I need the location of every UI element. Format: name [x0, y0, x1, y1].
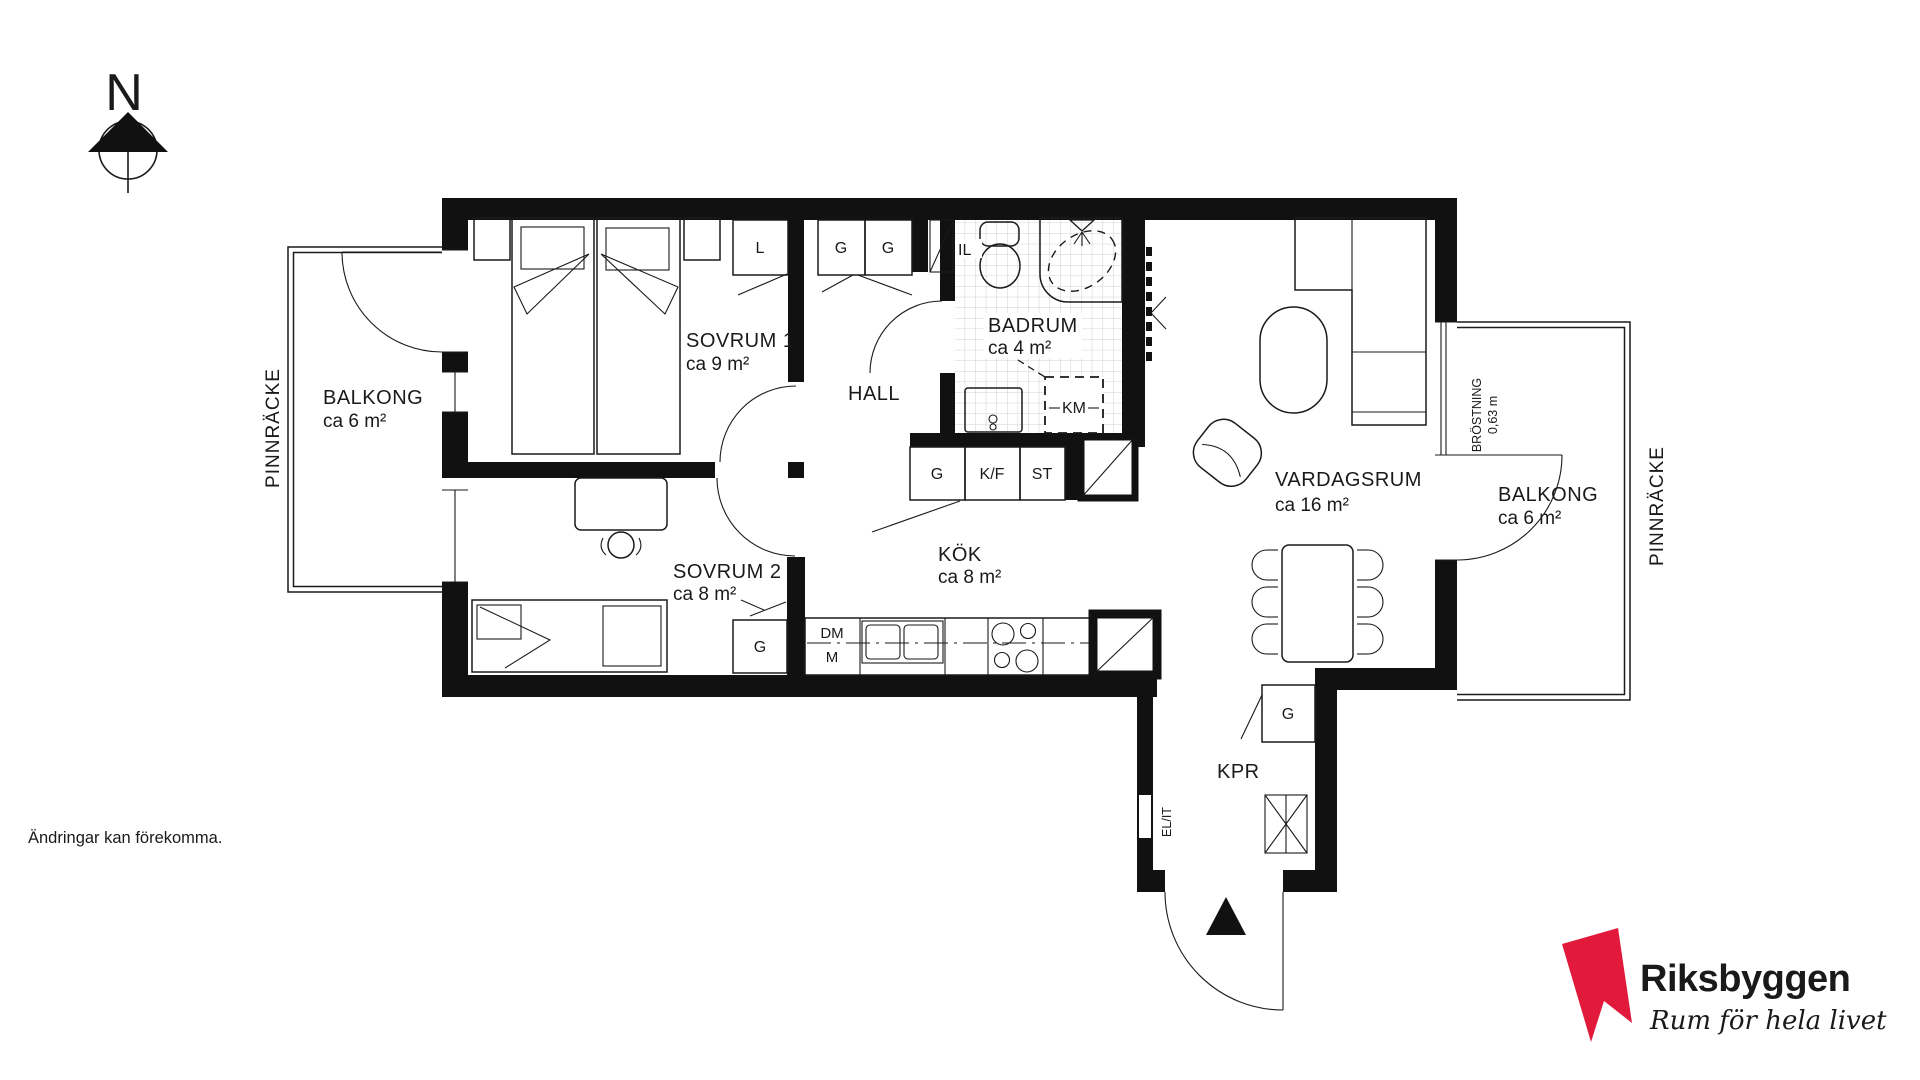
fixture-L: L — [756, 240, 765, 257]
room-label-sovrum2: SOVRUM 2 — [673, 561, 781, 583]
brand-tagline: Rum för hela livet — [1649, 1006, 1887, 1036]
floor-plan-page: N — [0, 0, 1920, 1080]
room-area-sovrum1: ca 9 m² — [686, 354, 749, 375]
door-bathroom — [870, 301, 942, 373]
coffee-table-icon — [1260, 307, 1327, 413]
railing-label-left: PINNRÄCKE — [263, 368, 284, 488]
door-bedroom1 — [720, 386, 796, 462]
coat-rack-icon — [1265, 795, 1307, 853]
vent-shaft-marker — [1149, 247, 1166, 367]
fixture-ST: ST — [1032, 466, 1053, 483]
double-bed-icon — [512, 218, 680, 454]
room-label-kpr: KPR — [1217, 761, 1260, 783]
nightstand-icon — [474, 218, 510, 260]
sofa-icon — [1295, 218, 1426, 425]
fixture-G1: G — [835, 240, 847, 257]
fixture-G-kpr: G — [1282, 706, 1294, 723]
room-area-kok: ca 8 m² — [938, 567, 1001, 588]
balcony-left-label: BALKONG — [323, 387, 423, 409]
riksbyggen-logo: Riksbyggen Rum för hela livet — [1562, 928, 1887, 1042]
fixture-IL: IL — [958, 242, 971, 259]
window-livingroom — [1435, 322, 1457, 455]
door-kitchen-leaf — [872, 501, 960, 532]
svg-text:BRÖSTNING: BRÖSTNING — [1470, 378, 1484, 452]
closet-G-bedroom2 — [733, 602, 787, 673]
room-label-sovrum1: SOVRUM 1 — [686, 330, 794, 352]
fixture-G-kitchen: G — [931, 466, 943, 483]
armchair-icon — [1186, 412, 1269, 494]
shaft-lower — [1093, 614, 1157, 675]
room-label-badrum: BADRUM — [988, 315, 1078, 337]
compass-icon: N — [88, 64, 168, 193]
balcony-door-swing — [342, 252, 442, 352]
window-bedroom1 — [442, 372, 468, 412]
room-area-sovrum2: ca 8 m² — [673, 584, 736, 605]
fixture-ELIT: EL/IT — [1160, 807, 1174, 837]
kitchen-counter — [805, 618, 1093, 675]
fixture-M: M — [826, 649, 839, 666]
closet-L — [733, 220, 788, 295]
floor-plan-svg: N — [0, 0, 1920, 1080]
stove-icon — [992, 623, 1038, 672]
closet-G-kpr — [1241, 685, 1315, 742]
svg-text:0,63 m: 0,63 m — [1486, 396, 1500, 434]
kitchen-sink-icon — [862, 621, 943, 663]
electrical-panel-icon — [1139, 795, 1151, 838]
compass-north-label: N — [105, 64, 143, 122]
hall-closets — [818, 220, 912, 295]
balcony-right-label: BALKONG — [1498, 484, 1598, 506]
fixture-G-bedroom2: G — [754, 639, 766, 656]
footer-disclaimer: Ändringar kan förekomma. — [28, 829, 222, 847]
single-bed-icon — [472, 600, 667, 672]
entrance — [1165, 892, 1283, 1010]
balcony-right-area: ca 6 m² — [1498, 508, 1561, 529]
entrance-arrow-icon — [1206, 897, 1246, 935]
room-label-hall: HALL — [848, 383, 900, 405]
dining-chairs — [1252, 550, 1383, 654]
window-bedroom2 — [442, 490, 468, 582]
brand-name: Riksbyggen — [1640, 958, 1850, 1000]
fixture-KF: K/F — [980, 466, 1005, 483]
shaft-upper — [1081, 437, 1135, 498]
logo-ribbon-icon — [1562, 928, 1632, 1042]
desk-icon — [575, 478, 667, 558]
balcony-left-area: ca 6 m² — [323, 411, 386, 432]
livingroom-furniture — [1186, 218, 1426, 662]
fixture-G2: G — [882, 240, 894, 257]
railing-label-right: PINNRÄCKE — [1647, 446, 1668, 566]
door-bedroom2 — [717, 478, 795, 556]
dining-set-icon — [1252, 545, 1383, 662]
parapet-label: BRÖSTNING 0,63 m — [1470, 378, 1500, 452]
nightstand-icon — [684, 218, 720, 260]
room-area-vardagsrum: ca 16 m² — [1275, 495, 1349, 516]
fixture-DM: DM — [820, 625, 843, 642]
room-label-vardagsrum: VARDAGSRUM — [1275, 469, 1422, 491]
room-label-kok: KÖK — [938, 544, 982, 566]
room-area-badrum: ca 4 m² — [988, 338, 1051, 359]
fixture-KM: KM — [1062, 400, 1086, 417]
